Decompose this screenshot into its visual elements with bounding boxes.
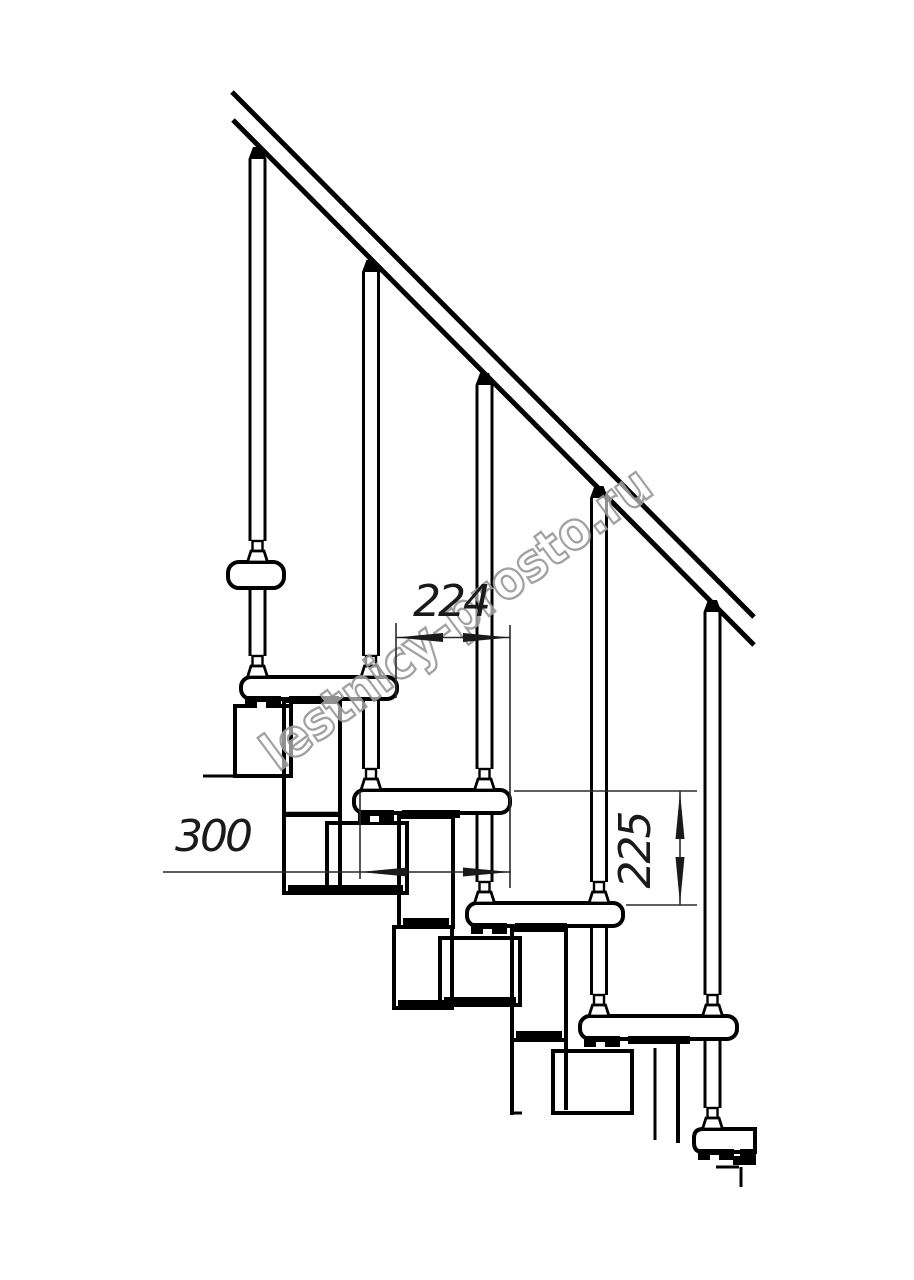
- arrow-right-icon: [463, 868, 510, 877]
- plate: [740, 1149, 756, 1157]
- collar: [703, 1005, 723, 1016]
- plate: [628, 1036, 690, 1044]
- notch: [483, 929, 492, 935]
- tread-0-cut-stub: [228, 562, 284, 588]
- collar: [589, 892, 609, 903]
- collar: [475, 892, 495, 903]
- joint-ring: [594, 882, 604, 892]
- staircase-drawing: lestnicy-prosto.ru 224 300 225: [0, 0, 914, 1280]
- collar: [589, 1005, 609, 1016]
- notch: [370, 816, 379, 822]
- tread-5-break-step: [733, 1156, 756, 1165]
- module3-base-plate: [444, 997, 516, 1005]
- collar: [703, 1118, 723, 1129]
- technical-drawing-page: lestnicy-prosto.ru 224 300 225: [0, 0, 914, 1280]
- joint-ring: [708, 995, 718, 1005]
- module3-column-plate: [516, 1031, 562, 1040]
- plate: [402, 810, 460, 818]
- tread-2: [354, 790, 510, 813]
- notch: [596, 1042, 605, 1048]
- joint-ring: [480, 769, 490, 779]
- tread-3-plate: [471, 923, 567, 935]
- notch: [257, 702, 266, 708]
- tread-3: [467, 903, 623, 926]
- joint-ring: [594, 995, 604, 1005]
- dimension-value: 225: [610, 813, 661, 889]
- arrow-down-icon: [676, 857, 685, 904]
- arrow-right-icon: [463, 633, 510, 642]
- collar: [361, 779, 381, 790]
- tread-4: [580, 1016, 737, 1039]
- collar: [475, 779, 495, 790]
- joint-ring: [366, 769, 376, 779]
- dimension-value: 224: [413, 576, 488, 627]
- joint-ring: [708, 1108, 718, 1118]
- plate: [515, 923, 567, 931]
- tread-5-cut: [694, 1129, 755, 1152]
- joint-ring: [480, 882, 490, 892]
- collar: [248, 551, 268, 562]
- tread-2-plate: [358, 810, 460, 822]
- notch: [710, 1155, 719, 1161]
- module2-base-plate: [331, 885, 403, 894]
- joint-ring: [253, 541, 263, 551]
- collar: [248, 666, 268, 677]
- dimension-value: 300: [175, 811, 251, 862]
- module1-lower-box: [284, 815, 340, 893]
- joint-ring: [253, 656, 263, 666]
- tread-4-plate: [584, 1036, 690, 1048]
- arrow-up-icon: [676, 792, 685, 839]
- arrow-left-icon: [360, 868, 407, 877]
